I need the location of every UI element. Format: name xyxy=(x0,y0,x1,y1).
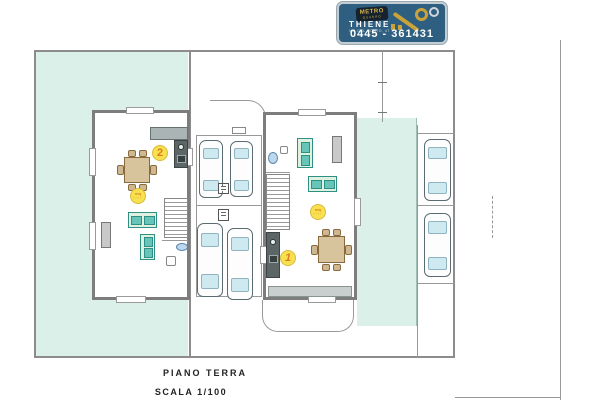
stove-icon xyxy=(269,255,278,263)
kitchen-counter-side xyxy=(266,232,280,278)
unit-2-number-badge: 2 xyxy=(152,145,168,161)
window xyxy=(89,222,96,250)
loveseat xyxy=(128,212,157,228)
window xyxy=(89,148,96,176)
chair xyxy=(322,229,330,236)
staircase xyxy=(266,174,290,230)
agency-logo: METRO QUADRO THIENE VIA DEL COSTO, 47 04… xyxy=(337,2,447,44)
window xyxy=(116,296,146,303)
driveway-apron xyxy=(262,300,354,332)
kitchen-counter-side xyxy=(174,140,188,168)
toilet-icon xyxy=(268,152,278,164)
plan-scale: SCALA 1/100 xyxy=(131,387,251,397)
sink-icon xyxy=(178,144,184,150)
window xyxy=(126,107,154,114)
kitchen-counter-bottom xyxy=(268,286,352,297)
agency-phone: 0445 - 361431 xyxy=(339,28,445,40)
chair xyxy=(128,150,136,157)
middle-parking-divider xyxy=(196,205,262,206)
sheet-right-line xyxy=(560,40,561,400)
garden-right xyxy=(357,118,417,326)
wardrobe xyxy=(332,136,342,163)
stove-icon xyxy=(177,155,186,163)
bathroom-wall xyxy=(266,172,290,173)
chair xyxy=(311,245,318,255)
car-icon xyxy=(424,139,451,201)
toilet-icon xyxy=(176,243,188,251)
car-icon xyxy=(197,223,223,297)
chair xyxy=(150,165,157,175)
staircase xyxy=(164,198,188,238)
chair xyxy=(322,264,330,271)
floor-plan-sheet: 2 mq ···· mq ···· 1 xyxy=(0,0,600,400)
window xyxy=(298,109,326,116)
sofa xyxy=(140,234,155,260)
dining-table xyxy=(318,236,345,263)
unit-1-number: 1 xyxy=(285,253,291,264)
dining-table xyxy=(124,157,150,183)
unit-1-area-value: ···· xyxy=(313,212,322,216)
utility-meter xyxy=(218,183,229,194)
chair xyxy=(333,264,341,271)
chair xyxy=(139,150,147,157)
window xyxy=(308,296,336,303)
chair xyxy=(333,229,341,236)
utility-meter xyxy=(218,209,229,221)
chair xyxy=(345,245,352,255)
car-icon xyxy=(227,228,253,300)
sofa xyxy=(297,138,313,168)
sheet-bottom-line xyxy=(455,397,560,398)
wardrobe xyxy=(101,222,111,248)
fence-tick-1 xyxy=(378,82,387,83)
unit-2-number: 2 xyxy=(157,148,163,159)
key-head-icon xyxy=(415,8,428,21)
right-parking-divider-1 xyxy=(418,133,455,134)
right-parking-divider-3 xyxy=(418,283,455,284)
sink-icon xyxy=(280,146,288,154)
car-icon xyxy=(424,213,451,277)
unit-2-area-badge: mq ···· xyxy=(130,188,146,204)
loveseat xyxy=(308,176,337,192)
chair xyxy=(117,165,124,175)
bathroom-wall xyxy=(162,240,188,241)
right-parking-left-line xyxy=(417,125,418,358)
unit-1-area-badge: mq ···· xyxy=(310,204,326,220)
driveway-curve xyxy=(210,100,266,130)
window xyxy=(354,198,361,226)
survey-marker-line xyxy=(492,196,493,238)
kitchen-counter-top xyxy=(150,127,188,140)
gate-post xyxy=(232,127,246,134)
sink-icon xyxy=(270,239,276,245)
unit-1-number-badge: 1 xyxy=(280,250,296,266)
car-icon xyxy=(230,141,253,197)
unit-2-area-value: ···· xyxy=(133,196,142,200)
shower-icon xyxy=(166,256,176,266)
keyring-icon xyxy=(429,7,439,17)
right-parking-divider-2 xyxy=(418,205,455,206)
fence-tick-2 xyxy=(378,112,387,113)
plan-title: PIANO TERRA xyxy=(140,368,270,378)
